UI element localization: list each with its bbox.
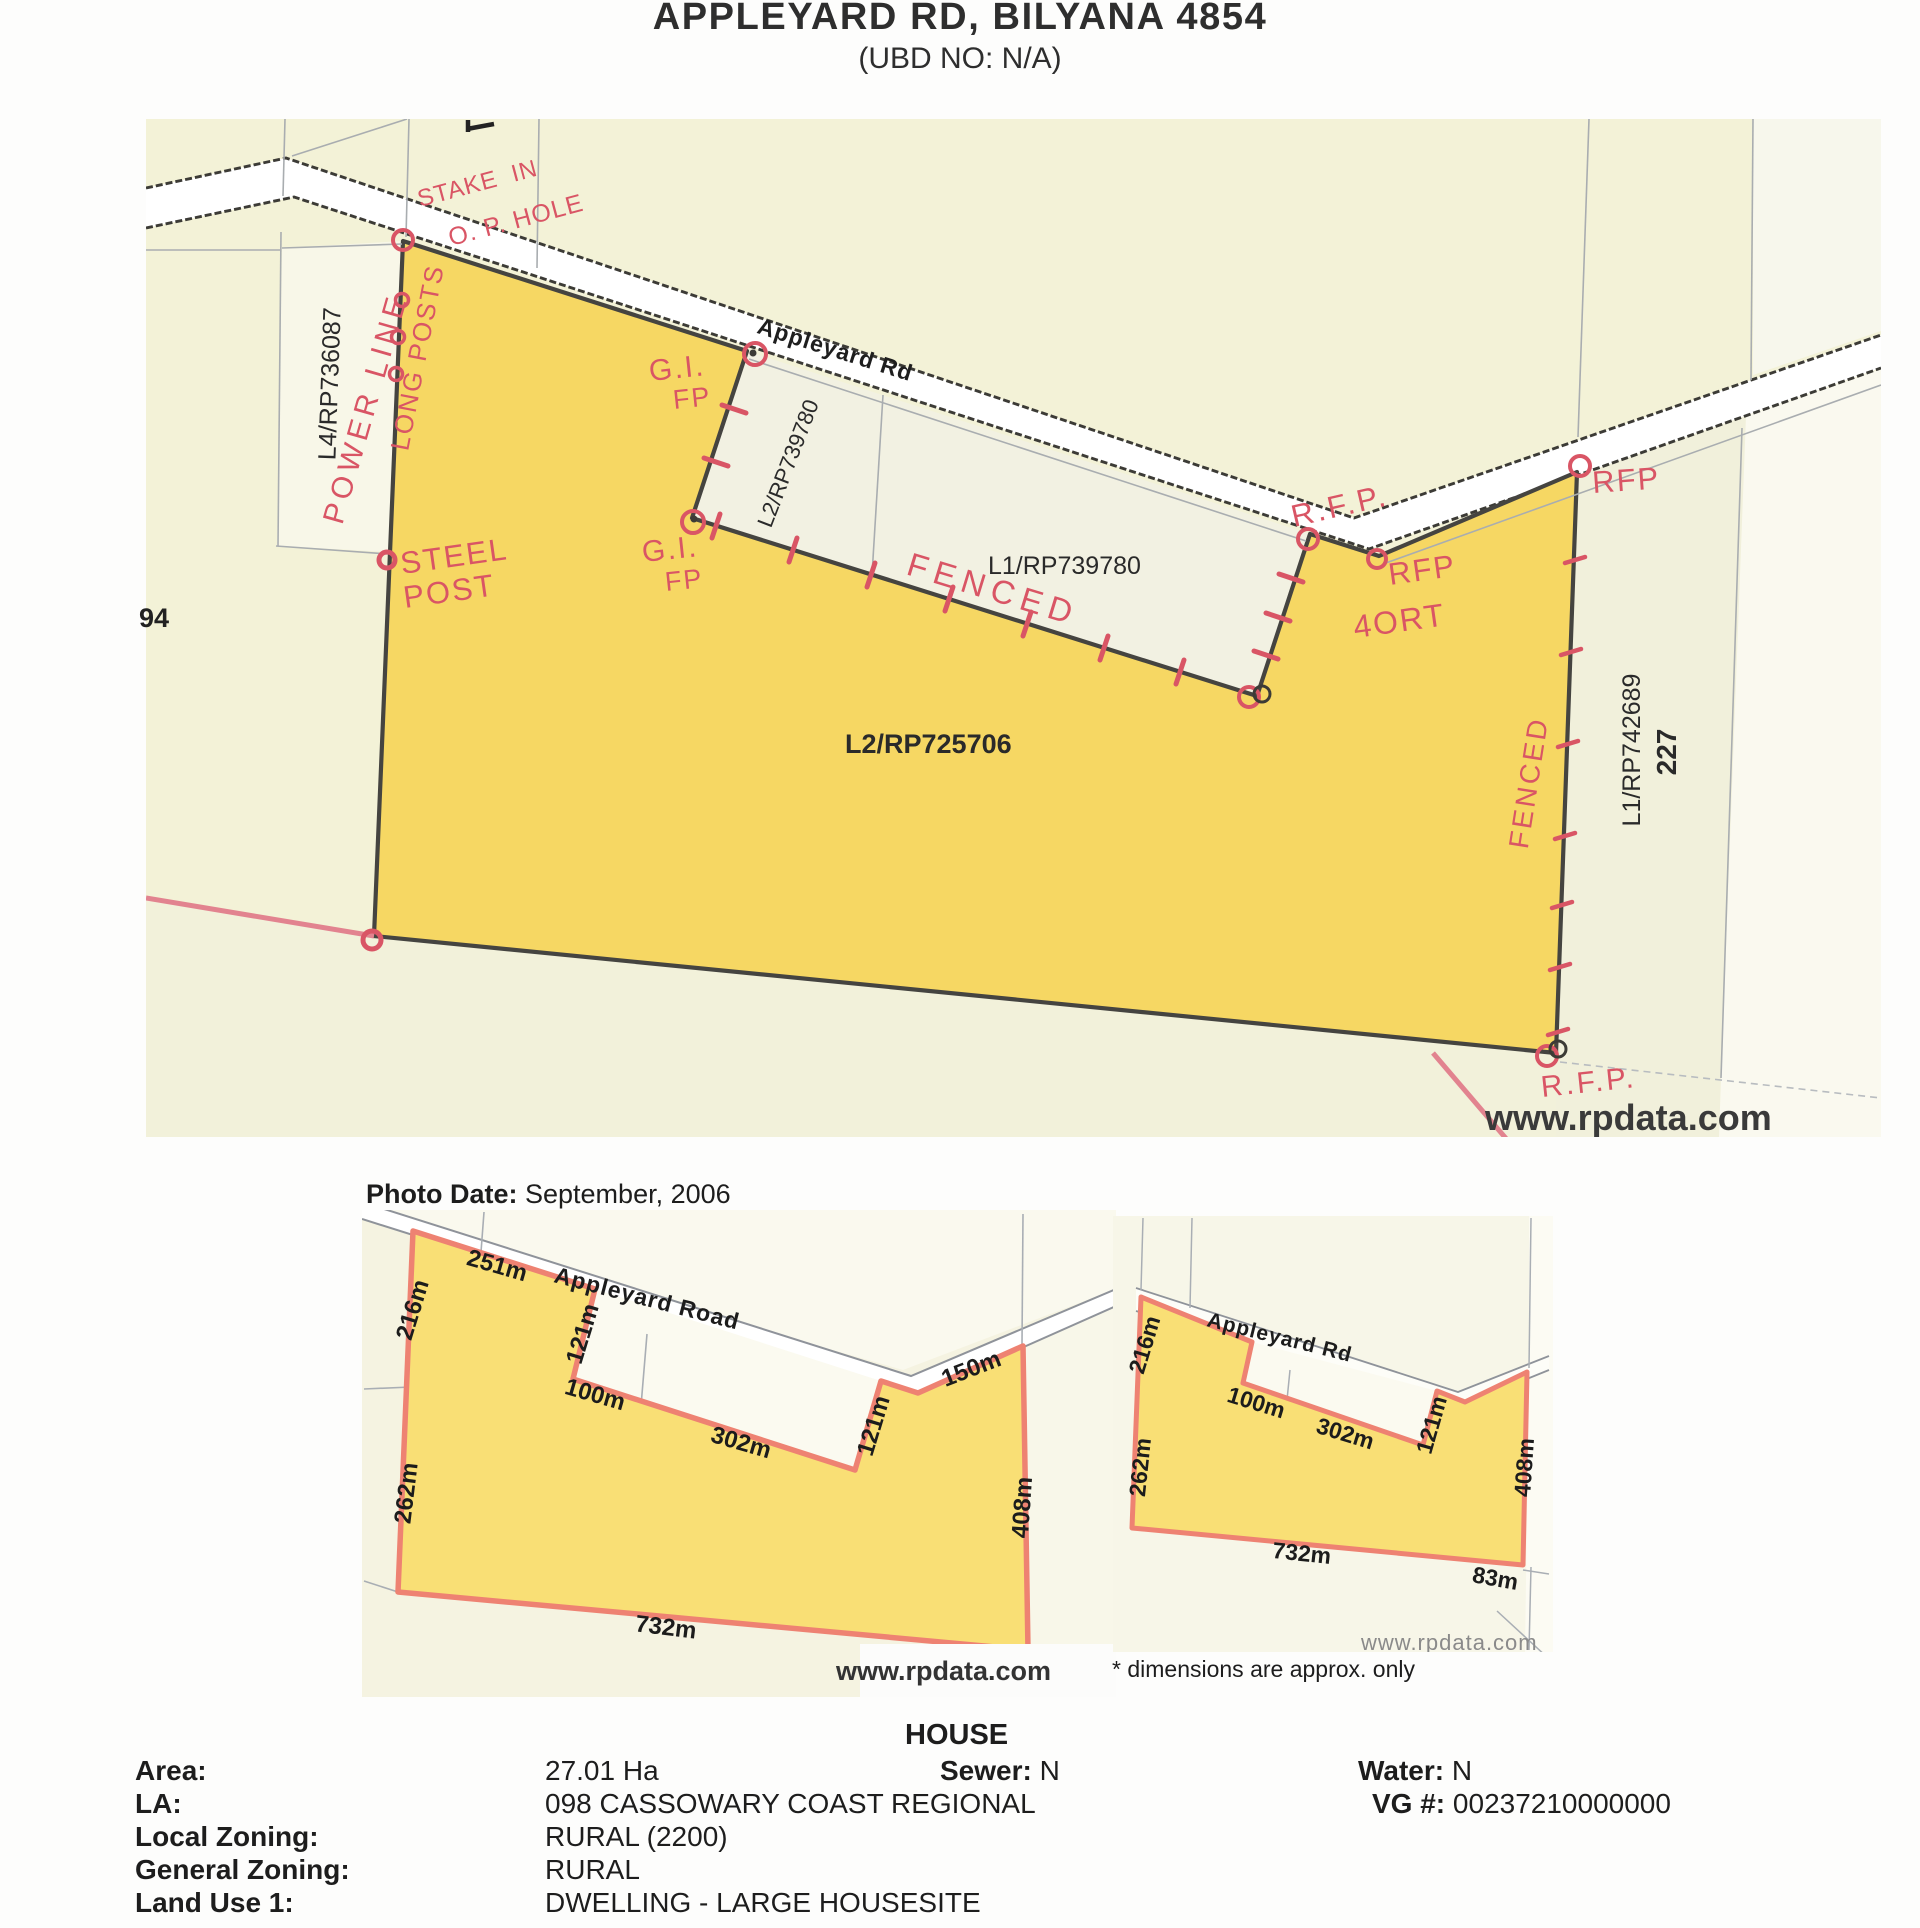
svg-text:408m: 408m <box>1007 1476 1038 1539</box>
svg-text:L2/RP725706: L2/RP725706 <box>845 729 1012 759</box>
svg-text:www.rpdata.com: www.rpdata.com <box>1360 1630 1538 1652</box>
svg-text:408m: 408m <box>1509 1437 1539 1497</box>
svg-text:L1/RP742689: L1/RP742689 <box>1618 674 1646 827</box>
svg-text:FP: FP <box>671 381 712 415</box>
svg-text:RFP: RFP <box>1591 460 1661 500</box>
svg-text:FP: FP <box>663 563 704 597</box>
svg-text:www.rpdata.com: www.rpdata.com <box>835 1656 1051 1686</box>
svg-text:www.rpdata.com: www.rpdata.com <box>1484 1097 1772 1137</box>
svg-text:227: 227 <box>1651 729 1682 776</box>
svg-text:G.I.: G.I. <box>640 530 699 569</box>
